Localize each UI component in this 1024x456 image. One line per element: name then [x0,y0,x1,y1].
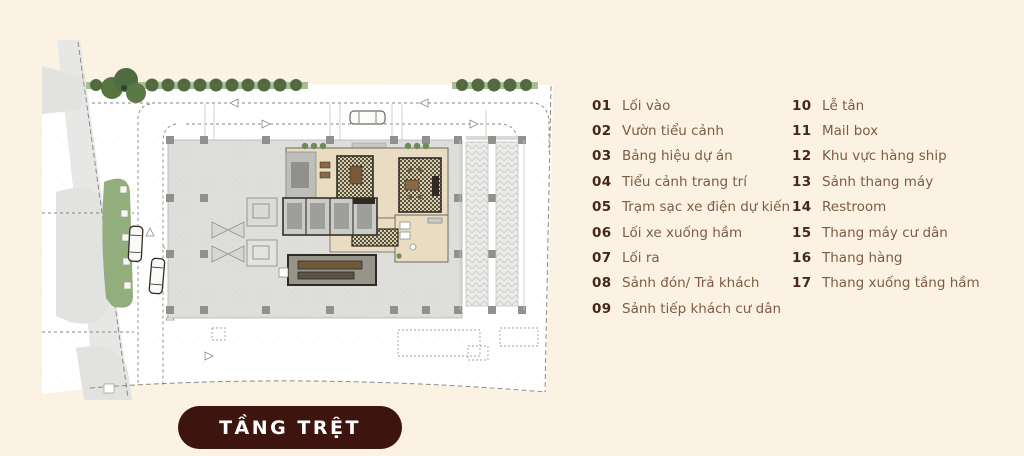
legend-item: 10 Lễ tân [792,93,980,118]
legend-item: 06 Lối xe xuống hầm [592,220,790,245]
legend-item: 13 Sảnh thang máy [792,169,980,194]
legend-item-number: 13 [792,174,822,190]
legend-item-label: Thang máy cư dân [822,225,948,241]
legend-item-number: 15 [792,225,822,241]
legend-item-number: 17 [792,275,822,291]
legend-item: 07 Lối ra [592,245,790,270]
legend-item-label: Sảnh đón/ Trả khách [622,275,759,291]
car-icon [149,258,165,294]
legend-column-left: 01 Lối vào 02 Vườn tiểu cảnh 03 Bảng hiệ… [592,93,790,322]
legend-item: 15 Thang máy cư dân [792,220,980,245]
legend-item: 01 Lối vào [592,93,790,118]
legend-item-label: Lối xe xuống hầm [622,225,742,241]
legend-item: 08 Sảnh đón/ Trả khách [592,271,790,296]
legend-item-number: 06 [592,225,622,241]
utility-box [104,384,114,393]
legend-item-number: 02 [592,123,622,139]
lounge-room [279,255,376,285]
legend-item-label: Sảnh thang máy [822,174,933,190]
legend-item-number: 04 [592,174,622,190]
legend-item-label: Tiểu cảnh trang trí [622,174,747,190]
page: 01 Lối vào 02 Vườn tiểu cảnh 03 Bảng hiệ… [0,0,1024,456]
garden-lawn [102,179,133,308]
legend-item-number: 14 [792,199,822,215]
legend-item-number: 11 [792,123,822,139]
legend-item-label: Vườn tiểu cảnh [622,123,724,139]
legend-item-label: Thang hàng [822,250,902,266]
legend-item-label: Khu vực hàng ship [822,148,947,164]
legend-item-number: 05 [592,199,622,215]
legend-item: 05 Trạm sạc xe điện dự kiến [592,195,790,220]
legend-item: 14 Restroom [792,195,980,220]
legend-item: 17 Thang xuống tầng hầm [792,271,980,296]
legend-item-number: 03 [592,148,622,164]
legend-item-label: Restroom [822,199,886,215]
legend-item-number: 08 [592,275,622,291]
legend-item-number: 10 [792,98,822,114]
legend-item-label: Lễ tân [822,98,864,114]
legend-item: 16 Thang hàng [792,245,980,270]
legend-item-label: Bảng hiệu dự án [622,148,733,164]
legend-item-label: Sảnh tiếp khách cư dân [622,301,781,317]
legend-item-label: Trạm sạc xe điện dự kiến [622,199,790,215]
floor-plan-drawing [0,0,580,456]
floor-title-badge: TẦNG TRỆT [178,406,402,449]
legend-item: 02 Vườn tiểu cảnh [592,118,790,143]
legend-item-label: Thang xuống tầng hầm [822,275,980,291]
legend-item-number: 01 [592,98,622,114]
legend-item: 11 Mail box [792,118,980,143]
legend-item-number: 07 [592,250,622,266]
legend-item-number: 12 [792,148,822,164]
legend-item-label: Mail box [822,123,878,139]
legend-item: 04 Tiểu cảnh trang trí [592,169,790,194]
legend-item: 12 Khu vực hàng ship [792,144,980,169]
legend-item: 03 Bảng hiệu dự án [592,144,790,169]
legend-item-number: 16 [792,250,822,266]
car-icon [350,111,385,124]
legend-item-label: Lối vào [622,98,670,114]
legend-item: 09 Sảnh tiếp khách cư dân [592,296,790,321]
floor-plan [0,0,580,456]
legend-item-number: 09 [592,301,622,317]
legend-item-label: Lối ra [622,250,660,266]
car-icon [128,226,143,262]
legend-column-right: 10 Lễ tân 11 Mail box 12 Khu vực hàng sh… [792,93,980,296]
